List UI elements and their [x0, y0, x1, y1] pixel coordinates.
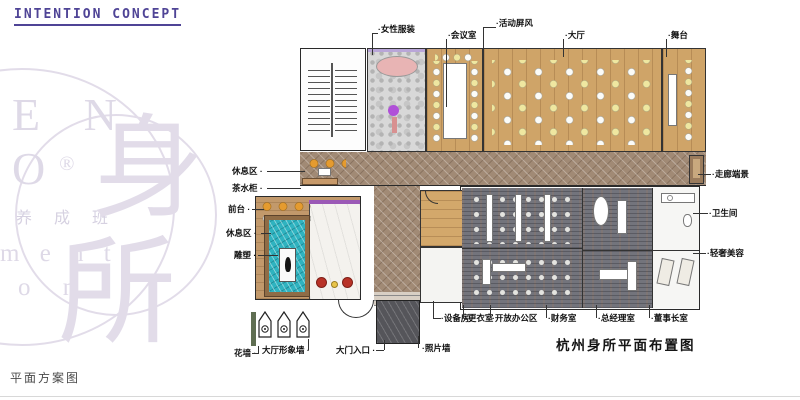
callout-rest-area-2: 休息区 ·	[226, 229, 257, 238]
leader-line	[649, 305, 650, 318]
main-hall	[483, 48, 662, 152]
leader-line	[433, 301, 434, 318]
floor-plan: ·女性服装 ·会议室 ·活动屏风 ·大厅 ·舞台 ·走廊端景 ·卫生间 ·轻奢美…	[0, 0, 800, 400]
corridor-vertical	[374, 186, 420, 294]
mannequin	[388, 105, 399, 116]
massage-bed	[676, 258, 694, 286]
callout-movable-screen: ·活动屏风	[496, 19, 533, 28]
intention-concept-page: E N O® 养 成 班 m e n t o n 身 所 INTENTION C…	[0, 0, 800, 400]
callout-open-office: ·开放办公区	[492, 314, 537, 323]
leader-line	[693, 213, 708, 214]
leader-line	[698, 174, 711, 175]
callout-womens-clothing: ·女性服装	[378, 25, 415, 34]
leader-line	[372, 33, 373, 55]
callout-beauty-room: ·轻奢美容	[707, 249, 744, 258]
equipment-room	[420, 247, 466, 303]
gm-office	[582, 188, 652, 250]
clothing-display-area	[367, 48, 426, 152]
leader-line	[384, 340, 385, 350]
leader-line	[463, 305, 464, 318]
front-desk-chairs	[259, 199, 311, 213]
leader-line	[596, 305, 597, 318]
red-armchair	[342, 277, 353, 288]
reception-block	[255, 196, 361, 300]
beauty-room	[652, 250, 699, 308]
callout-finance-room: ·财务室	[548, 314, 576, 323]
photo-wall	[376, 300, 420, 344]
leader-line	[258, 346, 259, 354]
changing-room	[420, 190, 466, 247]
corridor-end-feature	[689, 155, 704, 184]
callout-image-wall: 大厅形象墙 ·	[262, 346, 310, 355]
callout-tea-cabinet: 茶水柜 ·	[232, 184, 263, 193]
meeting-room	[426, 48, 483, 152]
leader-line	[483, 27, 484, 57]
stage-screen	[668, 74, 677, 126]
leader-line	[258, 255, 278, 256]
stage-area	[662, 48, 706, 152]
toilet	[683, 214, 692, 227]
callout-front-desk: 前台 ·	[228, 205, 250, 214]
side-table	[331, 281, 338, 288]
leader-line	[252, 209, 264, 210]
leader-line	[376, 350, 384, 351]
callout-photo-wall: ·照片墙	[422, 344, 450, 353]
chairman-office	[582, 250, 652, 308]
leader-line	[418, 336, 419, 348]
leader-line	[546, 305, 547, 318]
open-office	[462, 188, 582, 248]
leader-line	[308, 339, 309, 350]
callout-main-hall: ·大厅	[565, 31, 585, 40]
flower-wall	[251, 312, 256, 346]
corridor-horizontal	[300, 152, 706, 186]
leader-line	[446, 39, 447, 107]
pool-deck	[264, 215, 310, 297]
hall-chairs	[492, 60, 655, 145]
callout-rest-area-1: 休息区 ·	[232, 167, 263, 176]
tea-cabinet	[302, 178, 338, 185]
entrance-door-arc	[356, 300, 374, 318]
leader-line	[693, 253, 706, 254]
callout-main-entrance: 大门入口 ·	[336, 346, 375, 355]
massage-bed	[656, 258, 674, 286]
leader-line	[267, 188, 301, 189]
stairwell	[300, 48, 366, 151]
red-armchair	[316, 277, 327, 288]
image-wall	[257, 309, 313, 339]
callout-corridor-end: ·走廊端景	[712, 170, 749, 179]
purple-feature-wall	[309, 200, 360, 204]
callout-stage: ·舞台	[668, 31, 688, 40]
leader-line	[483, 27, 496, 28]
leader-line	[261, 233, 271, 234]
leader-line	[563, 39, 564, 57]
sculpture-plinth	[279, 248, 296, 282]
entrance-door-arc	[338, 300, 356, 318]
rest-area-table	[318, 168, 331, 176]
callout-restroom: ·卫生间	[709, 209, 737, 218]
oval-rug	[376, 56, 418, 77]
callout-meeting-room: ·会议室	[448, 31, 476, 40]
plan-caption: 杭州身所平面布置图	[556, 334, 696, 354]
callout-chairman-office: ·董事长室	[651, 314, 688, 323]
sculpture	[285, 257, 291, 272]
leader-line	[666, 39, 667, 57]
callout-gm-office: ·总经理室	[598, 314, 635, 323]
finance-room	[462, 248, 582, 308]
leader-line	[267, 171, 305, 172]
leader-line	[433, 318, 441, 319]
restroom	[652, 188, 699, 250]
leader-line	[490, 305, 491, 318]
callout-sculpture: 雕塑 ·	[234, 251, 256, 260]
